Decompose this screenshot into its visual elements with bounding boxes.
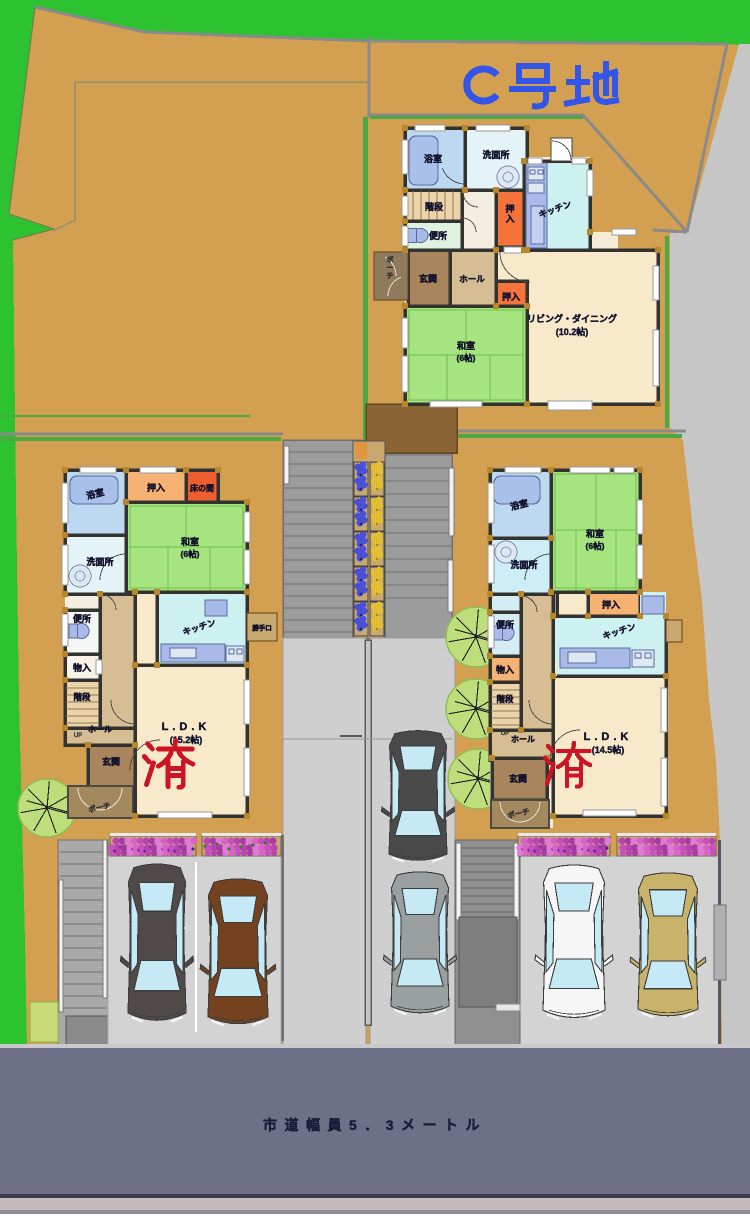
svg-text:押入: 押入 bbox=[502, 291, 520, 302]
svg-text:便所: 便所 bbox=[73, 613, 91, 624]
svg-text:リビング・ダイニング: リビング・ダイニング bbox=[527, 313, 617, 324]
svg-text:チ: チ bbox=[387, 272, 394, 280]
svg-text:洗面所: 洗面所 bbox=[510, 559, 537, 570]
svg-text:L.D.K: L.D.K bbox=[584, 731, 633, 743]
svg-text:玄関: 玄関 bbox=[419, 273, 437, 284]
svg-text:和室: 和室 bbox=[180, 536, 199, 547]
svg-text:市道幅員5．3メートル: 市道幅員5．3メートル bbox=[263, 1117, 487, 1133]
svg-text:ホール: ホール bbox=[88, 725, 112, 734]
svg-text:物入: 物入 bbox=[496, 664, 514, 675]
svg-text:UP: UP bbox=[501, 731, 509, 737]
svg-text:階段: 階段 bbox=[73, 692, 91, 702]
svg-text:玄関: 玄関 bbox=[509, 773, 527, 784]
svg-text:階段: 階段 bbox=[496, 694, 514, 704]
svg-text:便所: 便所 bbox=[429, 230, 447, 241]
svg-text:押: 押 bbox=[505, 203, 514, 214]
svg-text:床の間: 床の間 bbox=[190, 483, 214, 493]
svg-text:UP: UP bbox=[74, 733, 82, 739]
svg-text:洗面所: 洗面所 bbox=[86, 556, 113, 567]
svg-text:物入: 物入 bbox=[73, 662, 91, 673]
svg-text:ポ: ポ bbox=[387, 255, 394, 264]
svg-text:便所: 便所 bbox=[496, 619, 514, 630]
svg-text:階段: 階段 bbox=[425, 201, 444, 212]
svg-text:ー: ー bbox=[387, 265, 394, 272]
svg-text:(6帖): (6帖) bbox=[457, 353, 476, 363]
svg-text:ホール: ホール bbox=[459, 274, 485, 284]
svg-text:玄関: 玄関 bbox=[102, 756, 120, 767]
svg-text:押入: 押入 bbox=[147, 482, 165, 493]
svg-text:和室: 和室 bbox=[585, 528, 604, 539]
svg-text:(6帖): (6帖) bbox=[181, 549, 200, 559]
svg-text:押入: 押入 bbox=[602, 599, 620, 610]
svg-text:ホール: ホール bbox=[511, 735, 535, 744]
svg-text:(6帖): (6帖) bbox=[586, 541, 605, 551]
svg-text:浴室: 浴室 bbox=[424, 153, 442, 164]
svg-text:入: 入 bbox=[504, 214, 514, 224]
svg-text:(14.5帖): (14.5帖) bbox=[592, 744, 625, 755]
svg-text:L.D.K: L.D.K bbox=[162, 721, 211, 733]
svg-text:洗面所: 洗面所 bbox=[482, 149, 509, 160]
svg-text:勝手口: 勝手口 bbox=[252, 623, 272, 632]
svg-text:(10.2帖): (10.2帖) bbox=[556, 326, 589, 337]
svg-text:和室: 和室 bbox=[456, 340, 475, 351]
